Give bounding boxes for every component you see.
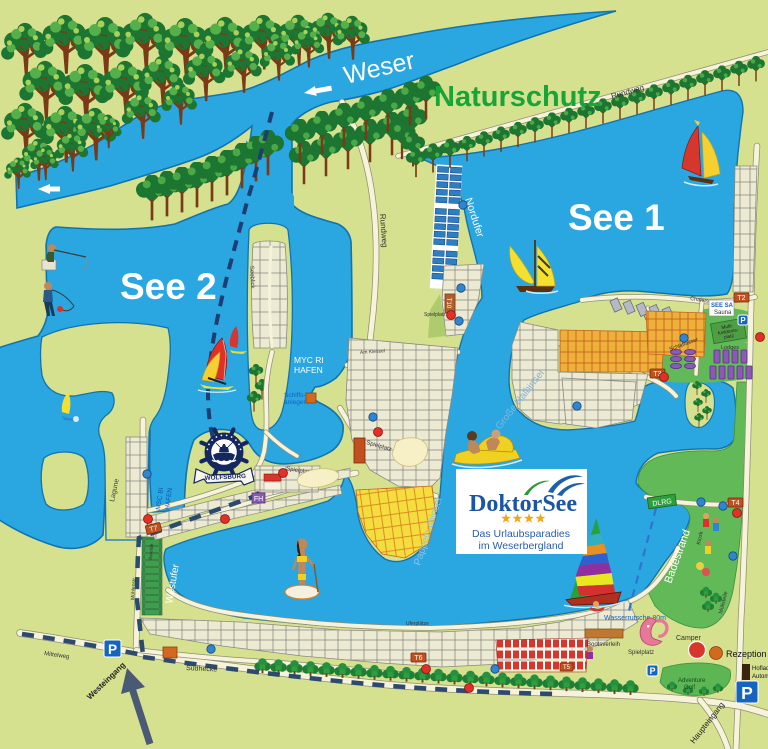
svg-text:SEE SA: SEE SA — [711, 303, 734, 309]
svg-text:Naturschutz: Naturschutz — [434, 81, 602, 113]
svg-text:Adventure: Adventure — [678, 678, 706, 684]
svg-text:Hoflad: Hoflad — [752, 666, 768, 672]
svg-text:Schiffs-: Schiffs- — [284, 392, 306, 399]
svg-text:Lodges: Lodges — [721, 345, 739, 351]
svg-text:Rezeption: Rezeption — [726, 649, 767, 659]
svg-text:Golf: Golf — [684, 685, 695, 691]
svg-text:Autom: Autom — [752, 674, 768, 680]
svg-text:anleger: anleger — [284, 399, 307, 406]
svg-text:Spielplatz: Spielplatz — [628, 650, 654, 656]
svg-text:T5: T5 — [563, 665, 571, 671]
svg-text:T10: T10 — [445, 298, 451, 309]
svg-text:T4: T4 — [731, 500, 739, 507]
svg-text:Uferplätze: Uferplätze — [406, 621, 429, 627]
svg-text:P: P — [740, 316, 746, 325]
svg-text:FH: FH — [254, 496, 263, 503]
svg-text:Sauna: Sauna — [714, 310, 732, 316]
svg-text:T2: T2 — [737, 295, 745, 302]
svg-text:Seeblick: Seeblick — [248, 266, 255, 290]
svg-text:MYC RI: MYC RI — [294, 355, 324, 365]
svg-text:P: P — [108, 642, 117, 657]
svg-text:See 2: See 2 — [120, 266, 217, 307]
svg-text:P: P — [741, 683, 753, 703]
svg-text:P: P — [650, 666, 656, 676]
svg-text:im Weserbergland: im Weserbergland — [478, 540, 563, 552]
svg-text:HAFEN: HAFEN — [294, 365, 323, 375]
svg-text:T6: T6 — [414, 655, 422, 662]
svg-text:See 1: See 1 — [568, 197, 665, 238]
svg-text:Spielplatz: Spielplatz — [424, 312, 446, 318]
svg-text:Das Urlaubsparadies: Das Urlaubsparadies — [472, 528, 570, 540]
svg-text:DoktorSee: DoktorSee — [469, 491, 577, 517]
svg-text:Aweide: Aweide — [148, 543, 155, 560]
